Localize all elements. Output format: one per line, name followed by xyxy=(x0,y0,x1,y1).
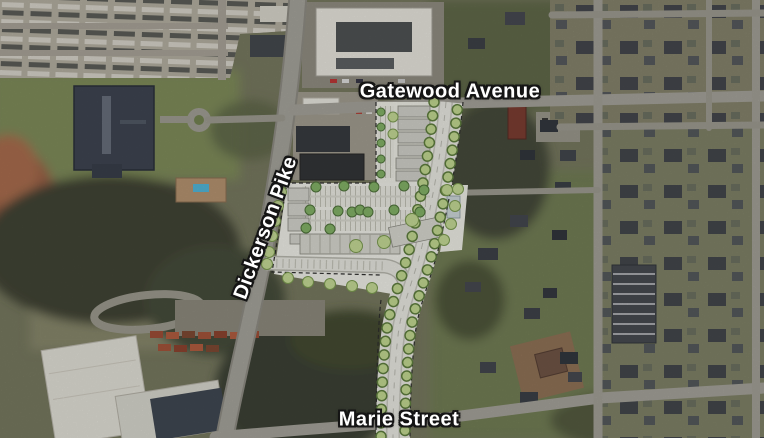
color-grade xyxy=(0,0,764,438)
map-canvas: Gatewood Avenue Dickerson Pike Marie Str… xyxy=(0,0,764,438)
aerial-map xyxy=(0,0,764,438)
